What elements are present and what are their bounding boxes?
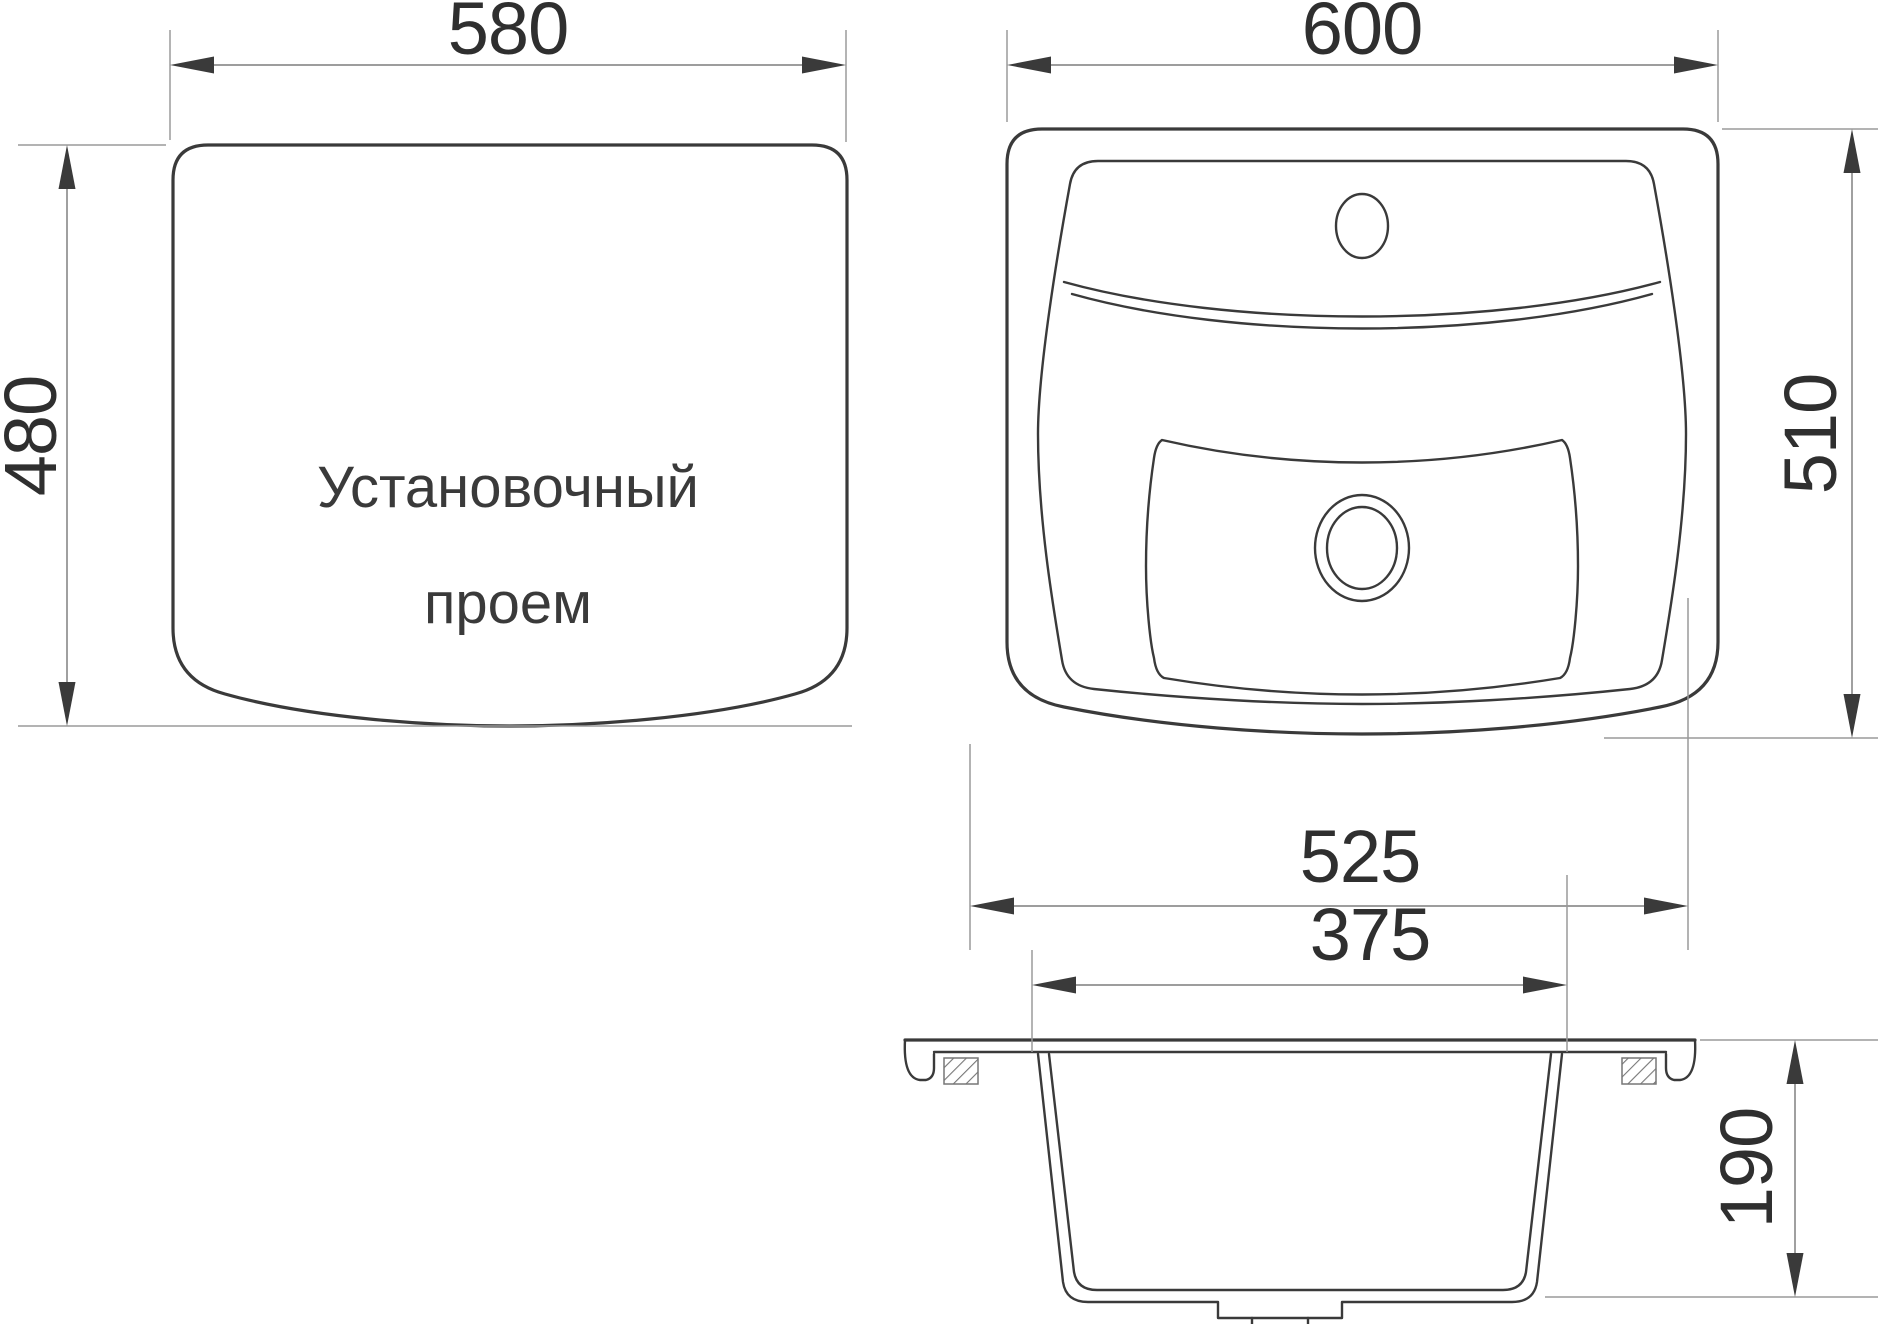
dimension-525-text: 525 (1300, 815, 1420, 898)
drain-hole-inner (1327, 507, 1397, 589)
arrowhead-right (1644, 898, 1688, 915)
drain-hole-outer (1315, 495, 1409, 601)
arrowhead-down (1844, 694, 1861, 738)
dimension-580-text: 580 (448, 0, 568, 70)
sink-bowl-outline (1146, 440, 1578, 695)
dimension-190: 190 (1545, 1040, 1878, 1297)
installation-opening-label-line2: проем (424, 571, 592, 636)
arrowhead-left (1032, 977, 1076, 994)
arrowhead-left (170, 57, 214, 74)
dimension-375-text: 375 (1310, 893, 1430, 976)
sink-outer-outline (1007, 129, 1718, 734)
dimension-480-text: 480 (0, 376, 72, 496)
dimension-600-text: 600 (1302, 0, 1422, 70)
dimension-480: 480 (0, 145, 852, 726)
installation-opening-label-line1: Установочный (317, 455, 699, 520)
ledge-curve-inner (1072, 294, 1652, 329)
arrowhead-down (59, 682, 76, 726)
dimension-375: 375 (1032, 875, 1567, 1052)
countertop-hatch-left (944, 1058, 978, 1084)
arrowhead-up (1844, 129, 1861, 173)
technical-drawing-page: Установочный проем 580 480 (0, 0, 1880, 1324)
rim-lip-right (1666, 1040, 1695, 1080)
installation-opening-view: Установочный проем 580 480 (0, 0, 852, 726)
sink-inner-rim (1038, 161, 1686, 704)
bowl-inner-wall (1049, 1054, 1551, 1290)
bowl-outer-wall (1038, 1054, 1562, 1318)
dimension-510-text: 510 (1769, 374, 1852, 494)
countertop-hatch-right (1622, 1058, 1656, 1084)
dimension-580: 580 (170, 0, 846, 142)
arrowhead-right (802, 57, 846, 74)
dimension-510: 510 (1604, 129, 1878, 738)
arrowhead-right (1674, 57, 1718, 74)
arrowhead-right (1523, 977, 1567, 994)
dimension-190-text: 190 (1705, 1108, 1788, 1228)
dimension-600: 600 (1007, 0, 1718, 122)
sink-dimensions-drawing: Установочный проем 580 480 (0, 0, 1880, 1324)
arrowhead-down (1787, 1253, 1804, 1297)
sink-section-view: 375 190 (905, 875, 1878, 1324)
installation-opening-outline (173, 145, 847, 726)
arrowhead-left (970, 898, 1014, 915)
arrowhead-left (1007, 57, 1051, 74)
rim-lip-left (905, 1040, 934, 1080)
arrowhead-up (59, 145, 76, 189)
arrowhead-up (1787, 1040, 1804, 1084)
faucet-hole (1336, 194, 1388, 258)
sink-top-view: 600 510 525 (970, 0, 1878, 950)
